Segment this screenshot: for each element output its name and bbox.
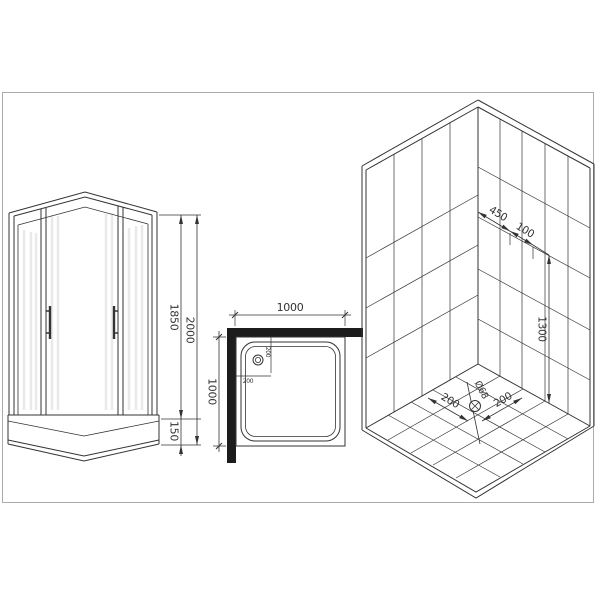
plan-tray-inner: [246, 347, 336, 437]
right-door-edge: [118, 206, 123, 415]
iso-right-wall-tiles: [478, 119, 590, 414]
plan-tray-rim: [241, 342, 340, 441]
dim-plan-depth: 1000: [206, 378, 219, 405]
dim-drain-top: 200: [264, 347, 271, 358]
iso-view: Ø68 450 100 1300 200: [362, 100, 594, 498]
drawing-svg: 1850 2000 150 200 200 1000: [0, 0, 600, 600]
iso-left-wall-edge: [362, 100, 478, 430]
front-tray: [8, 415, 159, 461]
dim-drain-left: 200: [243, 378, 254, 385]
dim-drain-diameter: Ø68: [472, 379, 491, 401]
iso-left-wall-tiles: [366, 123, 478, 412]
cabin-inner-frame: [14, 197, 152, 415]
iso-floor-rim: [362, 426, 594, 498]
plan-tray-outer: [236, 337, 345, 446]
dim-drain-right-wall: 200: [492, 390, 515, 410]
front-view: 1850 2000 150: [8, 192, 201, 461]
left-door-handle: [46, 306, 50, 339]
dim-drain-left-wall: 200: [439, 391, 462, 411]
plan-top-wall: [227, 328, 363, 337]
right-door-handle: [114, 306, 118, 339]
dim-door-height: 1850: [168, 304, 181, 331]
left-door-edge: [41, 208, 46, 415]
dim-wall-offset-b: 100: [514, 220, 537, 240]
dim-total-height: 2000: [184, 317, 197, 344]
iso-right-wall-edge: [478, 100, 594, 426]
plan-left-wall: [227, 328, 236, 463]
glass-shading: [24, 213, 142, 410]
dim-tray-height: 150: [168, 421, 181, 441]
dim-wall-offset-a: 450: [487, 204, 510, 224]
dim-fixture-height: 1300: [536, 316, 548, 342]
dim-plan-width: 1000: [277, 301, 304, 314]
plan-view: 200 200 1000 1000: [206, 301, 364, 463]
technical-drawing: 1850 2000 150 200 200 1000: [0, 0, 600, 600]
